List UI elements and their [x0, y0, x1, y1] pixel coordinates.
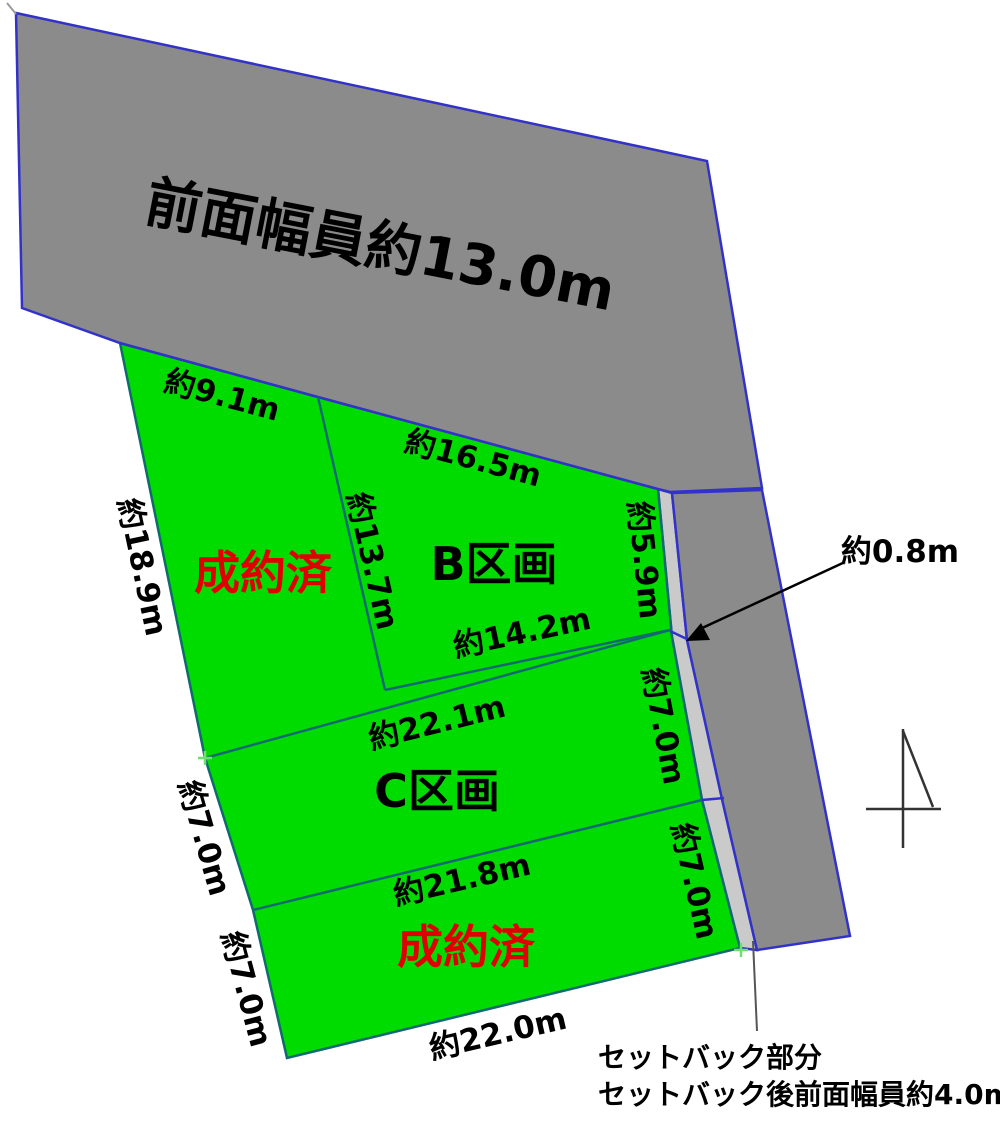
setback-leader-line — [753, 941, 757, 1031]
land-plot-diagram: 前面幅員約13.0m 約9.1m 約16.5m 約18.9m 約13.7m 約5… — [0, 0, 1000, 1145]
north-arrow-icon — [866, 729, 941, 848]
corner-spike — [7, 3, 16, 14]
setback-note-line1: セットバック部分 — [598, 1041, 822, 1074]
plot-map-canvas: 前面幅員約13.0m 約9.1m 約16.5m 約18.9m 約13.7m 約5… — [0, 0, 1000, 1145]
plot-c-name: C区画 — [374, 764, 500, 818]
plot-d-sold-label: 成約済 — [397, 920, 536, 974]
dim-setback-depth: 約0.8m — [841, 534, 959, 570]
plot-a-sold-label: 成約済 — [194, 546, 333, 600]
setback-note-line2: セットバック後前面幅員約4.0m — [598, 1078, 1000, 1111]
plot-b-name: B区画 — [430, 537, 557, 591]
